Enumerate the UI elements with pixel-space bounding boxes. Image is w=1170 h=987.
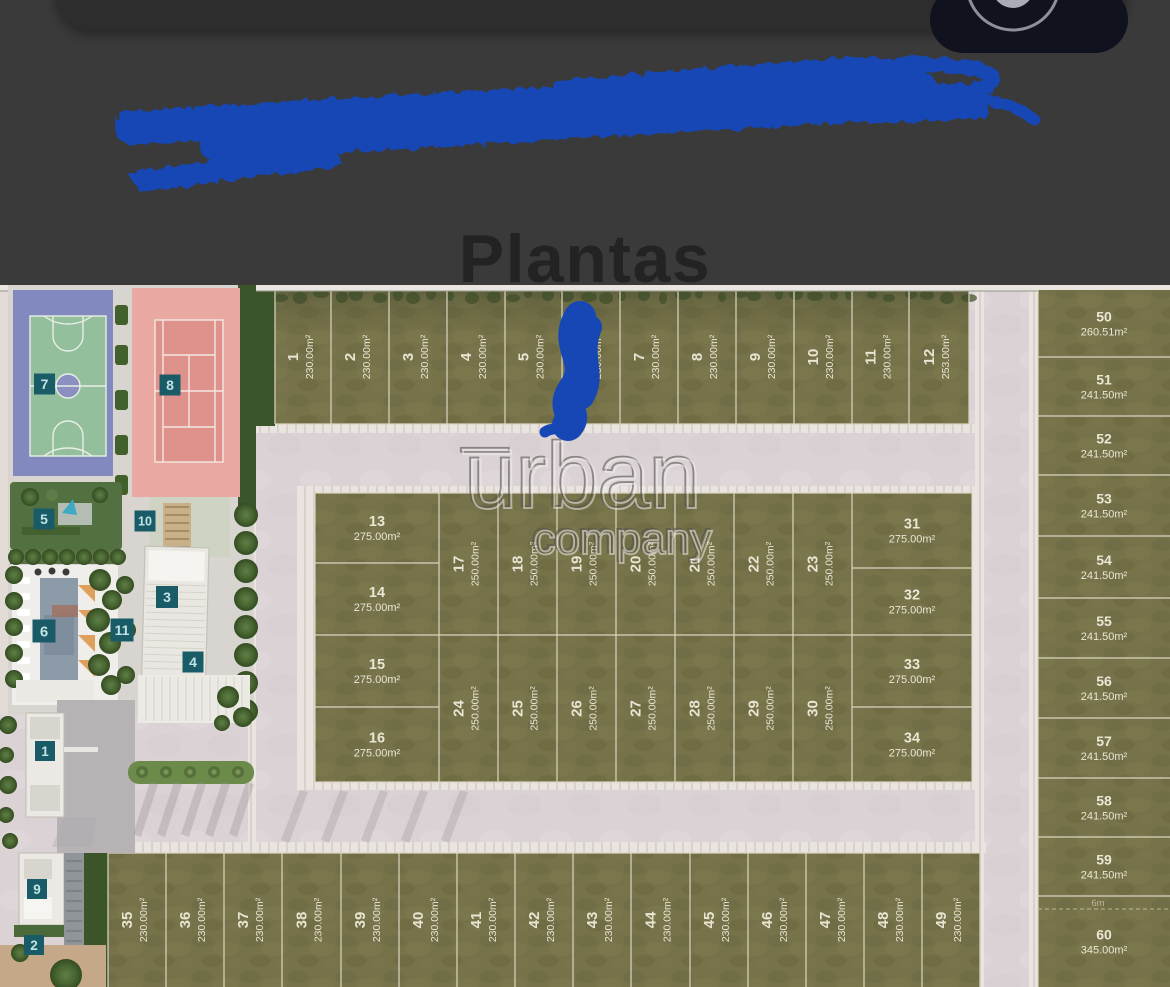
svg-text:11: 11	[115, 622, 130, 638]
svg-text:3: 3	[163, 589, 171, 605]
svg-text:4: 4	[189, 654, 197, 670]
svg-text:10: 10	[138, 515, 152, 529]
svg-text:urban: urban	[467, 426, 702, 528]
svg-text:5: 5	[40, 511, 48, 527]
svg-text:7: 7	[41, 376, 49, 392]
svg-text:2: 2	[30, 938, 38, 953]
svg-text:6m: 6m	[1091, 898, 1104, 909]
svg-text:8: 8	[166, 377, 174, 393]
svg-text:6: 6	[40, 623, 48, 640]
svg-text:1: 1	[41, 744, 49, 759]
svg-text:company: company	[534, 515, 713, 564]
svg-text:9: 9	[33, 882, 41, 897]
